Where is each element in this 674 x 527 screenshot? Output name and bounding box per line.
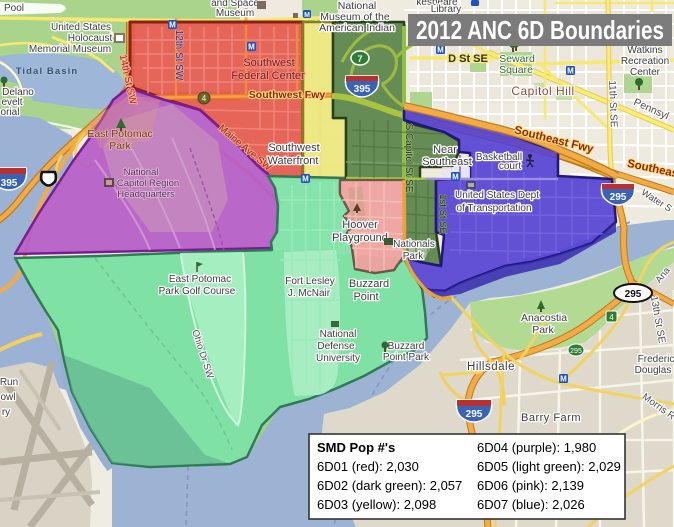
svg-text:SMD Pop #'s: SMD Pop #'s (317, 440, 395, 455)
svg-text:Square: Square (499, 64, 533, 76)
svg-text:Buzzard: Buzzard (388, 341, 425, 352)
svg-text:Federal Center: Federal Center (231, 70, 305, 82)
svg-text:6D07 (blue): 2,026: 6D07 (blue): 2,026 (477, 497, 585, 512)
svg-text:295: 295 (610, 192, 627, 203)
svg-text:Near: Near (433, 144, 457, 156)
svg-text:Nationals: Nationals (393, 239, 435, 250)
svg-text:Memorial Museum: Memorial Museum (29, 44, 111, 55)
svg-text:M: M (452, 173, 459, 182)
svg-text:4: 4 (202, 94, 207, 103)
svg-text:ry: ry (2, 407, 10, 418)
svg-text:12th St SW: 12th St SW (173, 30, 184, 81)
svg-text:6D04 (purple): 1,980: 6D04 (purple): 1,980 (477, 440, 596, 455)
svg-text:4: 4 (609, 313, 614, 322)
svg-text:Park: Park (403, 251, 425, 262)
svg-text:United States Dept: United States Dept (455, 190, 539, 201)
svg-text:Point Park: Point Park (383, 352, 430, 363)
svg-text:6D06 (pink): 2,139: 6D06 (pink): 2,139 (477, 478, 584, 493)
svg-text:Watkins: Watkins (627, 45, 662, 56)
svg-text:M: M (248, 43, 255, 52)
svg-text:395: 395 (354, 84, 371, 95)
svg-text:J. McNair: J. McNair (288, 288, 331, 299)
svg-text:Southwest: Southwest (243, 57, 294, 69)
svg-text:1st St SE: 1st St SE (437, 194, 448, 234)
svg-text:owl: owl (0, 392, 15, 403)
svg-text:6D05 (light green): 2,029: 6D05 (light green): 2,029 (477, 459, 621, 474)
svg-text:orial: orial (1, 107, 20, 118)
svg-text:Buzzard: Buzzard (349, 278, 389, 290)
svg-text:Capitol Region: Capitol Region (117, 178, 179, 189)
svg-text:295: 295 (466, 409, 483, 420)
svg-text:Hoover: Hoover (342, 219, 378, 231)
svg-text:Recreation: Recreation (621, 56, 669, 67)
svg-text:Southwest: Southwest (268, 142, 319, 154)
svg-text:295: 295 (570, 348, 582, 355)
svg-text:D St SE: D St SE (448, 53, 488, 65)
svg-text:University: University (316, 353, 360, 364)
svg-text:Playground: Playground (332, 232, 388, 244)
svg-text:of Transportation: of Transportation (456, 203, 531, 214)
svg-text:National: National (124, 167, 159, 178)
svg-text:Park: Park (109, 140, 131, 152)
svg-text:Tidal Basin: Tidal Basin (16, 66, 79, 77)
svg-text:Defense: Defense (317, 341, 355, 352)
svg-text:M: M (302, 175, 309, 184)
svg-text:Library: Library (431, 4, 462, 15)
svg-text:6D02 (dark green): 2,057: 6D02 (dark green): 2,057 (317, 478, 462, 493)
svg-text:Southeast: Southeast (422, 156, 472, 168)
svg-text:United States: United States (51, 22, 111, 33)
svg-text:court: court (499, 161, 521, 172)
svg-text:Park Golf Course: Park Golf Course (159, 286, 236, 297)
svg-text:2012 ANC 6D Boundaries: 2012 ANC 6D Boundaries (416, 15, 664, 45)
svg-text:11th St SE: 11th St SE (606, 80, 619, 128)
svg-text:M: M (304, 12, 310, 19)
svg-text:7: 7 (357, 54, 362, 64)
svg-text:American Indian: American Indian (319, 22, 395, 34)
svg-text:Museum: Museum (216, 8, 254, 19)
svg-text:Anacostia: Anacostia (521, 312, 567, 324)
svg-text:M: M (560, 375, 567, 384)
svg-text:East Potomac: East Potomac (169, 274, 231, 285)
svg-text:M: M (567, 67, 574, 76)
svg-text:Capitol Hill: Capitol Hill (511, 84, 574, 98)
svg-text:M: M (437, 46, 444, 55)
svg-text:295: 295 (625, 289, 642, 300)
svg-text:6D03 (yellow): 2,098: 6D03 (yellow): 2,098 (317, 497, 436, 512)
svg-text:Douglas: Douglas (635, 365, 672, 376)
svg-text:National: National (320, 329, 357, 340)
svg-text:395: 395 (1, 178, 18, 189)
svg-text:Frederic: Frederic (638, 354, 674, 365)
svg-text:Barry Farm: Barry Farm (521, 412, 581, 424)
svg-text:Waterfront: Waterfront (268, 155, 319, 167)
svg-text:Holocaust: Holocaust (68, 33, 113, 44)
svg-text:Point: Point (353, 291, 378, 303)
svg-text:Pool: Pool (4, 3, 24, 14)
svg-text:Hillsdale: Hillsdale (467, 361, 515, 373)
svg-text:6D01 (red): 2,030: 6D01 (red): 2,030 (317, 459, 419, 474)
svg-text:Park: Park (532, 324, 554, 336)
svg-text:Headquarters: Headquarters (117, 189, 175, 200)
svg-text:S Capitol St SE: S Capitol St SE (403, 124, 414, 193)
svg-text:Fort Lesley: Fort Lesley (285, 276, 334, 287)
svg-text:Run: Run (0, 377, 18, 388)
svg-text:Southwest Fwy: Southwest Fwy (249, 89, 326, 101)
svg-text:M: M (169, 21, 176, 30)
svg-text:Center: Center (630, 67, 661, 78)
